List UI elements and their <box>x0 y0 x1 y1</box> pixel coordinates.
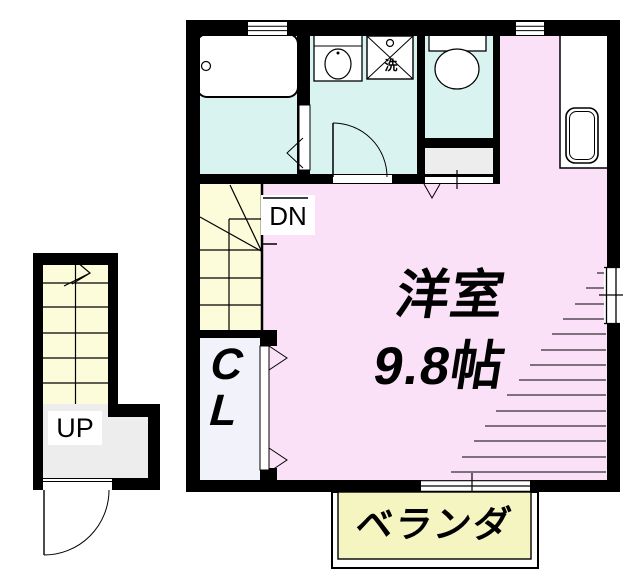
bathtub-faucet <box>202 62 211 71</box>
washroom-door-opening <box>333 174 392 184</box>
entrance-door-arc <box>44 490 109 555</box>
western-room-name: 洋室 <box>320 260 581 331</box>
closet-letter-c: C <box>198 342 255 388</box>
stairs-down-label: DN <box>261 200 315 233</box>
window-top-right <box>516 22 544 35</box>
washbasin <box>314 34 362 81</box>
closet-letter-l: L <box>195 388 252 434</box>
kitchen-sink <box>566 108 598 163</box>
stairs-up-label: UP <box>48 411 102 445</box>
bathroom-door <box>299 105 310 170</box>
floor-plan: 洋室 9.8帖 C L DN UP ベランダ 洗 <box>0 0 640 582</box>
stairs-down-floor <box>200 184 262 330</box>
washing-machine-label: 洗 <box>378 58 404 74</box>
stairs-up-steps <box>43 262 108 404</box>
storage-opening <box>425 176 493 184</box>
closet-label: C L <box>195 342 255 434</box>
western-room-size: 9.8帖 <box>309 331 570 402</box>
entrance-door <box>43 479 112 555</box>
western-room-label: 洋室 9.8帖 <box>309 260 581 402</box>
closet-door <box>260 346 269 470</box>
balcony-label: ベランダ <box>330 502 537 548</box>
entrance-structure <box>33 253 160 555</box>
storage-floor <box>425 148 493 176</box>
bathtub <box>197 34 298 97</box>
window-top-left <box>248 22 287 35</box>
